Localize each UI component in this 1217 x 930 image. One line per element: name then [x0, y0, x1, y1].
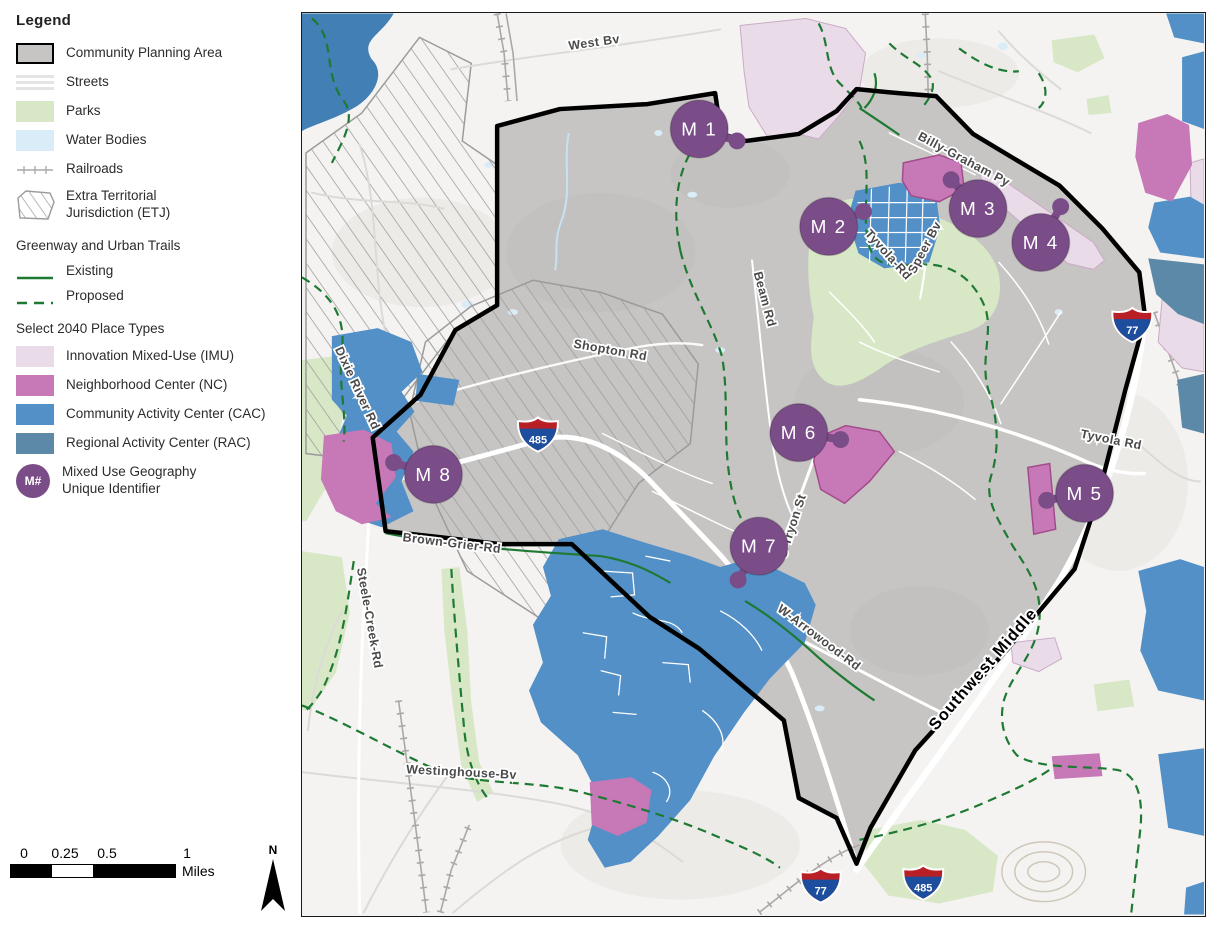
streets-swatch [16, 72, 54, 93]
imu-swatch [16, 346, 54, 367]
scale-tick-0: 0 [20, 845, 28, 861]
scale-unit: Miles [182, 863, 215, 879]
shield-number: 77 [815, 886, 827, 898]
marker-anchor-dot [1038, 492, 1055, 509]
planning-area-swatch [16, 43, 54, 64]
legend-item-label: Community Activity Center (CAC) [66, 406, 266, 423]
scale-tick-025: 0.25 [51, 845, 78, 861]
scale-tick-05: 0.5 [97, 845, 116, 861]
legend-item-railroads: Railroads [16, 159, 300, 180]
marker-anchor-dot [385, 454, 402, 471]
legend-item-mixed-use-id: M# Mixed Use Geography Unique Identifier [16, 464, 300, 498]
proposed-trail-swatch [16, 293, 54, 299]
marker-anchor-dot [729, 132, 746, 149]
north-label: N [255, 843, 291, 857]
marker-label: M 7 [741, 537, 777, 558]
legend-item-water: Water Bodies [16, 130, 300, 151]
legend-item-label: Parks [66, 103, 101, 120]
scale-bar: 0 0.25 0.5 1 Miles [10, 845, 250, 879]
legend-item-label: Railroads [66, 161, 123, 178]
legend-item-label: Innovation Mixed-Use (IMU) [66, 348, 234, 365]
marker-label: M 1 [681, 119, 717, 140]
legend-item-existing-trail: Existing [16, 263, 300, 280]
existing-trail-swatch [16, 268, 54, 274]
scale-tick-1: 1 [183, 845, 191, 861]
marker-label: M 8 [415, 465, 451, 486]
legend-panel: Legend Community Planning Area Streets P… [0, 0, 300, 930]
marker-anchor-dot [943, 171, 960, 188]
marker-label: M 4 [1023, 233, 1059, 254]
shield-number: 485 [914, 883, 932, 895]
legend-item-label: Proposed [66, 288, 124, 305]
legend-item-etj: Extra Territorial Jurisdiction (ETJ) [16, 188, 300, 222]
marker-label: M 5 [1067, 484, 1103, 505]
legend-item-cac: Community Activity Center (CAC) [16, 404, 300, 425]
legend-item-label: Extra Territorial Jurisdiction (ETJ) [66, 188, 226, 222]
legend-item-planning-area: Community Planning Area [16, 43, 300, 64]
legend-item-label: Regional Activity Center (RAC) [66, 435, 251, 452]
legend-item-imu: Innovation Mixed-Use (IMU) [16, 346, 300, 367]
legend-item-label: Neighborhood Center (NC) [66, 377, 227, 394]
cac-swatch [16, 404, 54, 425]
shield-number: 485 [529, 435, 547, 447]
railroads-swatch [16, 159, 54, 180]
parks-swatch [16, 101, 54, 122]
greenway-section-title: Greenway and Urban Trails [16, 238, 300, 253]
rac-swatch [16, 433, 54, 454]
marker-anchor-dot [855, 203, 872, 220]
north-arrow: N [255, 843, 291, 920]
legend-item-label: Water Bodies [66, 132, 147, 149]
legend-item-label: Mixed Use Geography Unique Identifier [62, 464, 232, 498]
marker-label: M 6 [781, 423, 817, 444]
legend-item-rac: Regional Activity Center (RAC) [16, 433, 300, 454]
mixed-use-id-swatch: M# [16, 464, 50, 498]
marker-anchor-dot [1052, 198, 1069, 215]
marker-anchor-dot [730, 572, 747, 589]
nc-swatch [16, 375, 54, 396]
legend-item-proposed-trail: Proposed [16, 288, 300, 305]
legend-item-nc: Neighborhood Center (NC) [16, 375, 300, 396]
marker-label: M 3 [960, 199, 996, 220]
legend-item-parks: Parks [16, 101, 300, 122]
shield-number: 77 [1126, 325, 1138, 337]
scale-labels: 0 0.25 0.5 1 [10, 845, 250, 863]
map-panel: West BvBilly-Graham PySpeer BvTyvola-RdB… [301, 12, 1206, 917]
legend-item-label: Streets [66, 74, 109, 91]
scale-bar-segments [10, 864, 176, 878]
legend-title: Legend [16, 12, 300, 29]
map: West BvBilly-Graham PySpeer BvTyvola-RdB… [302, 13, 1204, 915]
water-swatch [16, 130, 54, 151]
legend-item-label: Existing [66, 263, 113, 280]
legend-item-label: Community Planning Area [66, 45, 222, 62]
etj-swatch [16, 188, 54, 222]
marker-label: M 2 [811, 217, 847, 238]
marker-anchor-dot [832, 431, 849, 448]
north-arrow-glyph [258, 857, 288, 915]
place-types-section-title: Select 2040 Place Types [16, 321, 300, 336]
legend-item-streets: Streets [16, 72, 300, 93]
